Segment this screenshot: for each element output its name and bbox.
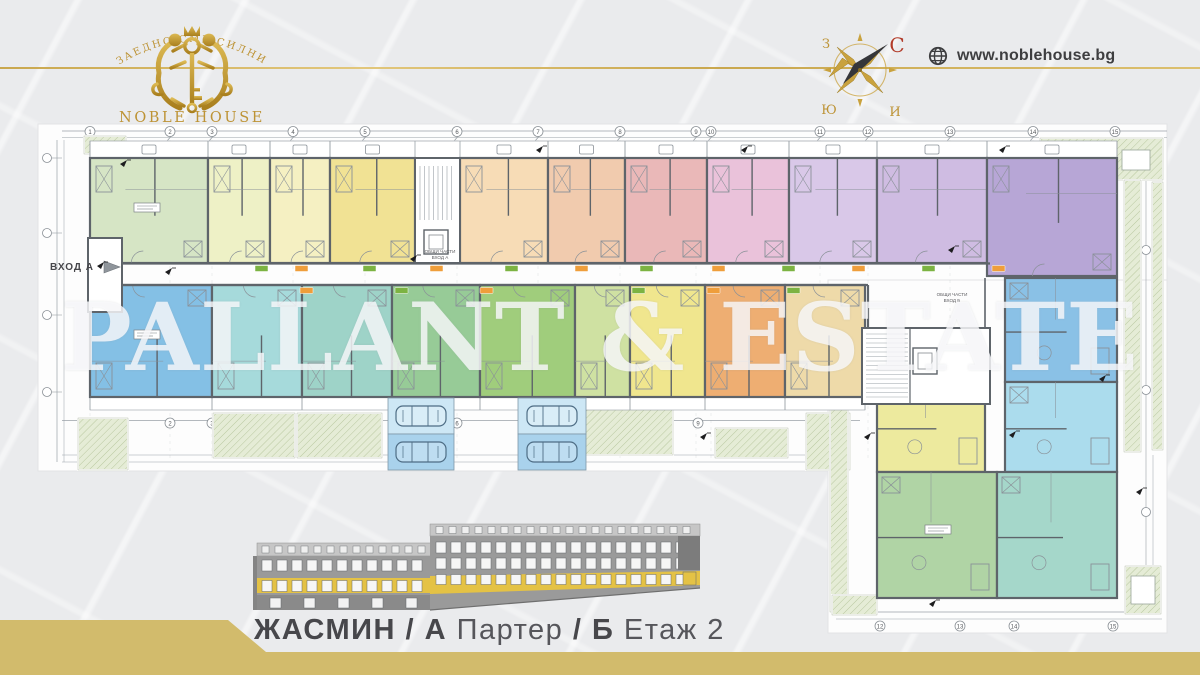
elev-window (661, 558, 671, 569)
apartment-unit (707, 158, 789, 263)
row-bubble (1142, 246, 1151, 255)
elev-window (511, 558, 521, 569)
elev-roof-window (579, 527, 586, 534)
elev-window (262, 581, 272, 592)
landscape-area (715, 428, 788, 458)
apartment-unit (212, 285, 302, 397)
apartment-unit (302, 285, 392, 397)
elev-window (526, 558, 536, 569)
elev-window (397, 581, 407, 592)
apartment-badge (363, 266, 376, 272)
landscape-area (78, 418, 128, 470)
plan-caption: ЖАСМИН / А Партер / Б Етаж 2 (254, 614, 725, 647)
elev-window (601, 542, 611, 553)
elev-end-wall (253, 556, 257, 610)
elev-roof-window (514, 527, 521, 534)
elev-window (511, 542, 521, 553)
elev-roof-window (418, 546, 425, 553)
elev-roof-window (566, 527, 573, 534)
elev-roof-window (475, 527, 482, 534)
apartment-unit (705, 285, 785, 397)
apartment-badge (707, 288, 720, 294)
elev-roof-window (644, 527, 651, 534)
plan-text: ВХОД Б (944, 298, 961, 303)
apartment-badge (852, 266, 865, 272)
plan-text: 11 (817, 130, 824, 136)
elev-roof-window (262, 546, 269, 553)
caption-segment: ЖАСМИН (254, 614, 396, 646)
plan-text: ОБЩИ ЧАСТИ (937, 292, 968, 297)
car-icon (396, 406, 446, 426)
plan-text: 15 (1110, 624, 1117, 630)
landscape-area (830, 380, 848, 612)
elev-window (661, 542, 671, 553)
elev-roof-window (488, 527, 495, 534)
landscape-area (297, 413, 382, 458)
planter-box (1122, 150, 1150, 170)
apartment-badge (782, 266, 795, 272)
elev-roof-window (353, 546, 360, 553)
elev-window (646, 575, 656, 585)
elev-roof-window (553, 527, 560, 534)
elev-window (367, 581, 377, 592)
elev-door (372, 598, 383, 608)
elev-window (496, 542, 506, 553)
elev-roof-window (405, 546, 412, 553)
apartment-badge (505, 266, 518, 272)
elev-window (646, 558, 656, 569)
elev-window (292, 560, 302, 571)
apartment-badge (787, 288, 800, 294)
caption-segment: / (563, 614, 592, 646)
elev-roof-window (436, 527, 443, 534)
building-elevation (253, 524, 700, 610)
elev-roof-window (657, 527, 664, 534)
elev-window (631, 558, 641, 569)
elev-window (481, 558, 491, 569)
row-bubble (43, 388, 52, 397)
landscape-area (213, 413, 295, 458)
apartment-unit (208, 158, 270, 263)
rect (527, 442, 577, 462)
elev-roof-window (366, 546, 373, 553)
elev-window (307, 560, 317, 571)
elev-roof-window (288, 546, 295, 553)
elev-roof-window (379, 546, 386, 553)
elev-window (367, 560, 377, 571)
caption-segment: Б (592, 614, 614, 646)
elev-window (466, 575, 476, 585)
row-bubble (1142, 386, 1151, 395)
elev-window (616, 542, 626, 553)
elev-roof-window (540, 527, 547, 534)
elev-window (481, 575, 491, 585)
elev-window (382, 581, 392, 592)
car-icon (527, 406, 577, 426)
apartment-unit (392, 285, 480, 397)
elev-roof-window (670, 527, 677, 534)
plan-text: ВХОД А (432, 255, 450, 260)
row-bubble (43, 229, 52, 238)
elev-window (616, 558, 626, 569)
elev-window (322, 581, 332, 592)
apartment-unit (877, 472, 997, 598)
elev-window (307, 581, 317, 592)
elev-window (556, 542, 566, 553)
elev-end-window (683, 572, 696, 585)
terrace-strip (90, 141, 1117, 158)
elev-roof-window (618, 527, 625, 534)
elev-window (262, 560, 272, 571)
apartment-badge (922, 266, 935, 272)
apartment-badge (640, 266, 653, 272)
elev-door (406, 598, 417, 608)
apartment-badge (395, 288, 408, 294)
apartment-badge (992, 266, 1005, 272)
elev-roof-window (592, 527, 599, 534)
elev-window (511, 575, 521, 585)
elev-window (556, 575, 566, 585)
apartment-unit (270, 158, 330, 263)
elev-window (337, 560, 347, 571)
elev-window (631, 575, 641, 585)
row-bubble (43, 311, 52, 320)
plan-text: 12 (877, 624, 884, 630)
elev-roof-window (275, 546, 282, 553)
rect (396, 442, 446, 462)
caption-segment: / (396, 614, 425, 646)
apartment-badge (430, 266, 443, 272)
elev-window (466, 542, 476, 553)
elev-roof-window (314, 546, 321, 553)
plan-text: 15 (1112, 130, 1119, 136)
elev-roof-window (631, 527, 638, 534)
elev-roof-window (527, 527, 534, 534)
elev-roof-window (605, 527, 612, 534)
plan-text: 14 (1011, 624, 1018, 630)
apartment-unit (785, 285, 865, 397)
apartment-unit (548, 158, 625, 263)
elev-window (397, 560, 407, 571)
elev-window (541, 542, 551, 553)
elev-window (412, 560, 422, 571)
elev-window (436, 575, 446, 585)
elev-window (526, 542, 536, 553)
elev-roof-window (301, 546, 308, 553)
plan-text: 13 (947, 130, 954, 136)
elev-roof-window (327, 546, 334, 553)
elev-window (337, 581, 347, 592)
elev-roof-window (501, 527, 508, 534)
elev-window (646, 542, 656, 553)
elev-window (541, 558, 551, 569)
elev-window (481, 542, 491, 553)
landscape-area (832, 595, 877, 615)
apartment-badge (480, 288, 493, 294)
elev-window (451, 542, 461, 553)
elev-window (586, 542, 596, 553)
elev-door (304, 598, 315, 608)
elev-roof-window (449, 527, 456, 534)
elev-window (631, 542, 641, 553)
plan-text: 10 (708, 130, 715, 136)
balcony-strip (90, 397, 865, 410)
plan-text: 13 (957, 624, 964, 630)
elev-window (277, 581, 287, 592)
apartment-badge (575, 266, 588, 272)
caption-segment: Партер (447, 614, 563, 646)
apartment-badge (255, 266, 268, 272)
elev-window (277, 560, 287, 571)
elev-window (586, 575, 596, 585)
apartment-unit (625, 158, 707, 263)
car-icon (527, 442, 577, 462)
apartment-badge (632, 288, 645, 294)
elev-roof-window (340, 546, 347, 553)
elev-window (496, 558, 506, 569)
car-icon (396, 442, 446, 462)
rect (396, 406, 446, 426)
row-bubble (43, 154, 52, 163)
caption-segment: Етаж 2 (614, 614, 725, 646)
elev-window (616, 575, 626, 585)
elev-window (526, 575, 536, 585)
elev-window (322, 560, 332, 571)
elev-window (352, 581, 362, 592)
entrance-lobby (88, 238, 122, 312)
elev-window (451, 558, 461, 569)
brochure-page: ЗАЕДНО СМЕ СИЛНИ (0, 0, 1200, 675)
elev-window (382, 560, 392, 571)
elev-window (436, 542, 446, 553)
plan-text: ВХОД А (50, 262, 94, 273)
elevator (913, 348, 937, 374)
plan-text: 12 (865, 130, 872, 136)
plan-text: ОБЩИ ЧАСТИ (425, 249, 456, 254)
elev-window (571, 575, 581, 585)
planter-box (1131, 576, 1155, 604)
elev-window (571, 558, 581, 569)
floor-plan-scene: 12345678910111213141523456912131415ВХОД … (0, 0, 1200, 675)
elev-window (601, 575, 611, 585)
plan-text: 14 (1030, 130, 1037, 136)
unit-label-box (134, 330, 160, 339)
rect (527, 406, 577, 426)
elev-door (338, 598, 349, 608)
elev-window (412, 581, 422, 592)
elev-window (571, 542, 581, 553)
row-bubble (1142, 508, 1151, 517)
apartment-unit (575, 285, 630, 397)
unit-label-box (134, 203, 160, 212)
elev-window (352, 560, 362, 571)
apartment-badge (295, 266, 308, 272)
apartment-unit (1005, 382, 1117, 472)
elev-window (601, 558, 611, 569)
elev-window (496, 575, 506, 585)
elev-window (466, 558, 476, 569)
elev-window (436, 558, 446, 569)
unit-label-box (925, 525, 951, 534)
elev-window (451, 575, 461, 585)
elev-window (556, 558, 566, 569)
elev-end-block (678, 536, 700, 570)
elev-window (541, 575, 551, 585)
elev-roof-window (683, 527, 690, 534)
elev-window (661, 575, 671, 585)
landscape-area (1124, 180, 1141, 452)
elev-window (292, 581, 302, 592)
apartment-badge (712, 266, 725, 272)
elev-roof-window (462, 527, 469, 534)
elev-door (270, 598, 281, 608)
elev-window (586, 558, 596, 569)
caption-segment: А (425, 614, 447, 646)
elev-roof-window (392, 546, 399, 553)
apartment-badge (300, 288, 313, 294)
apartment-unit (480, 285, 575, 397)
apartment-unit (997, 472, 1117, 598)
landscape-area (1152, 182, 1163, 450)
